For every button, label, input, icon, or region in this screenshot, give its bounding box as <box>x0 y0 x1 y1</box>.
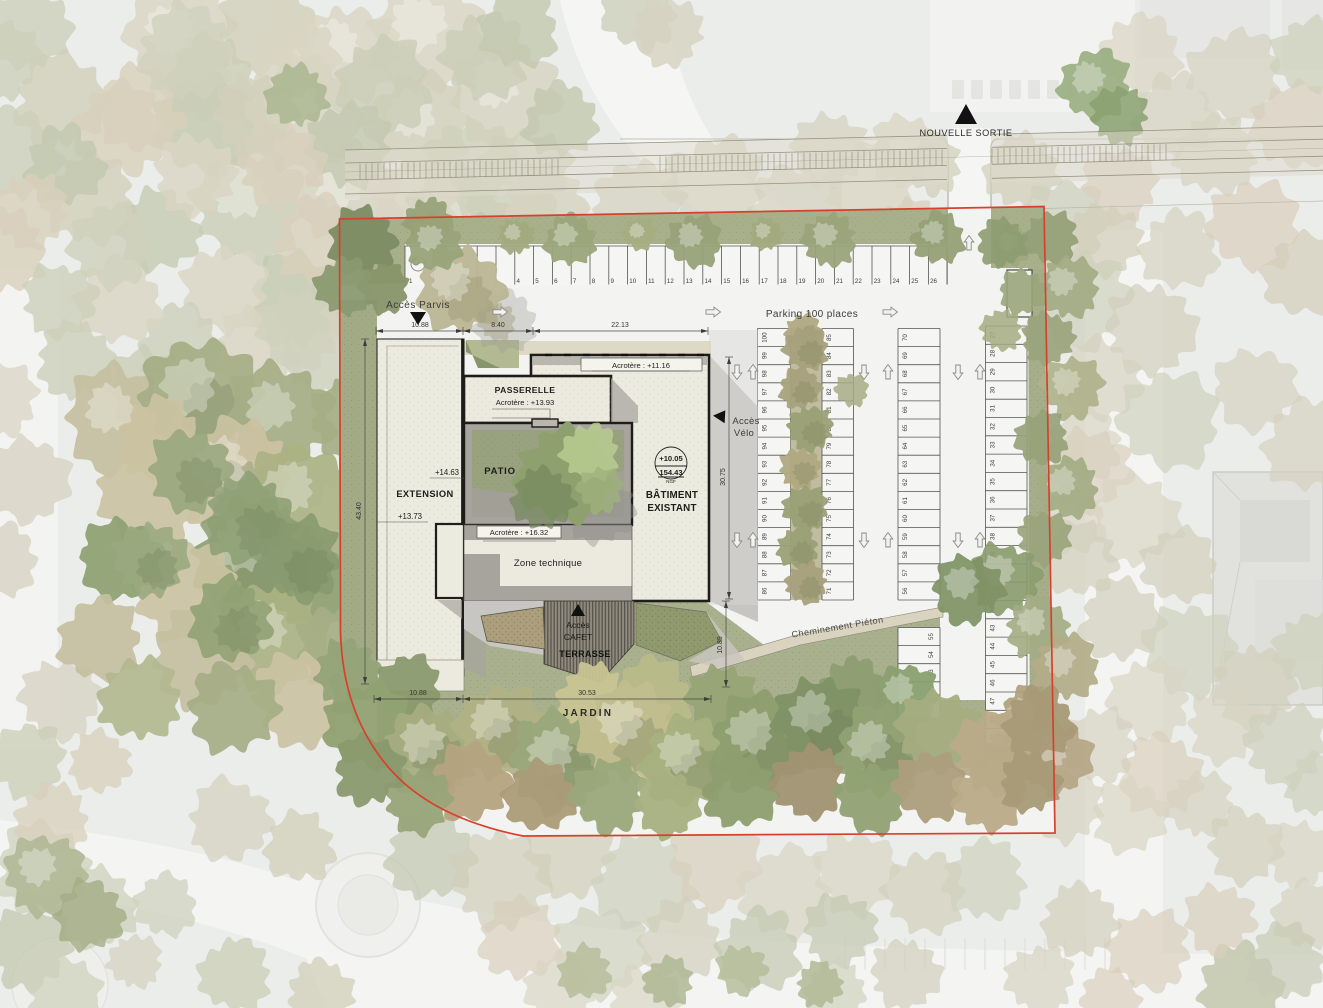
svg-text:62: 62 <box>902 478 909 485</box>
svg-text:99: 99 <box>762 352 769 359</box>
svg-text:32: 32 <box>990 423 997 430</box>
svg-text:63: 63 <box>902 460 909 467</box>
svg-text:23: 23 <box>874 278 881 285</box>
svg-text:5: 5 <box>535 278 539 285</box>
svg-text:68: 68 <box>902 370 909 377</box>
svg-text:72: 72 <box>826 569 833 576</box>
svg-text:45: 45 <box>990 661 997 668</box>
svg-text:35: 35 <box>990 478 997 485</box>
svg-text:EXTENSION: EXTENSION <box>396 489 453 499</box>
svg-text:36: 36 <box>990 496 997 503</box>
svg-text:89: 89 <box>762 533 769 540</box>
svg-text:88: 88 <box>762 551 769 558</box>
svg-text:64: 64 <box>902 442 909 449</box>
svg-text:73: 73 <box>826 551 833 558</box>
svg-text:54: 54 <box>928 651 935 658</box>
svg-text:NGF: NGF <box>666 479 676 484</box>
svg-text:10.89: 10.89 <box>717 636 724 654</box>
svg-text:34: 34 <box>990 459 997 466</box>
svg-text:91: 91 <box>762 497 769 504</box>
svg-text:37: 37 <box>990 514 997 521</box>
svg-text:77: 77 <box>826 478 833 485</box>
svg-text:87: 87 <box>762 569 769 576</box>
svg-text:86: 86 <box>762 587 769 594</box>
svg-text:30.75: 30.75 <box>720 468 727 486</box>
svg-text:98: 98 <box>762 370 769 377</box>
svg-text:29: 29 <box>990 368 997 375</box>
svg-text:8.40: 8.40 <box>491 322 505 329</box>
svg-text:83: 83 <box>826 370 833 377</box>
svg-text:13: 13 <box>686 278 693 285</box>
svg-text:85: 85 <box>826 334 833 341</box>
svg-text:70: 70 <box>902 334 909 341</box>
svg-text:7: 7 <box>573 278 577 285</box>
svg-text:TERRASSE: TERRASSE <box>559 649 610 659</box>
svg-text:154.43: 154.43 <box>659 468 682 477</box>
svg-text:31: 31 <box>990 404 997 411</box>
svg-text:Accès Parvis: Accès Parvis <box>386 300 450 311</box>
svg-text:25: 25 <box>911 278 918 285</box>
svg-text:19: 19 <box>799 278 806 285</box>
svg-text:82: 82 <box>826 388 833 395</box>
svg-text:58: 58 <box>902 551 909 558</box>
svg-text:Accès: Accès <box>732 416 759 427</box>
svg-text:30: 30 <box>990 386 997 393</box>
svg-text:9: 9 <box>611 278 615 285</box>
svg-text:Accès: Accès <box>566 620 589 630</box>
svg-text:61: 61 <box>902 497 909 504</box>
svg-text:+14.63: +14.63 <box>435 468 459 477</box>
svg-text:Acrotère : +16.32: Acrotère : +16.32 <box>490 528 548 537</box>
svg-text:Acrotère : +11.16: Acrotère : +11.16 <box>612 361 670 370</box>
svg-text:46: 46 <box>990 679 997 686</box>
svg-text:Zone technique: Zone technique <box>514 558 582 569</box>
svg-text:21: 21 <box>836 278 843 285</box>
svg-text:57: 57 <box>902 569 909 576</box>
svg-text:1: 1 <box>409 278 413 285</box>
svg-text:78: 78 <box>826 460 833 467</box>
svg-text:Acrotère : +13.93: Acrotère : +13.93 <box>496 398 554 407</box>
svg-text:55: 55 <box>928 633 935 640</box>
svg-text:+10.05: +10.05 <box>659 454 683 463</box>
svg-text:Vélo: Vélo <box>734 428 754 439</box>
svg-text:11: 11 <box>648 278 655 285</box>
svg-text:14: 14 <box>705 278 712 285</box>
svg-text:10.88: 10.88 <box>411 322 429 329</box>
svg-text:71: 71 <box>826 587 833 594</box>
svg-text:12: 12 <box>667 278 674 285</box>
svg-text:93: 93 <box>762 460 769 467</box>
svg-text:22.13: 22.13 <box>611 322 629 329</box>
svg-text:67: 67 <box>902 388 909 395</box>
svg-text:+13.73: +13.73 <box>398 512 422 521</box>
svg-text:69: 69 <box>902 352 909 359</box>
svg-text:94: 94 <box>762 442 769 449</box>
svg-text:4: 4 <box>517 278 521 285</box>
svg-text:60: 60 <box>902 515 909 522</box>
svg-text:10.88: 10.88 <box>409 690 427 697</box>
svg-text:97: 97 <box>762 388 769 395</box>
svg-text:92: 92 <box>762 478 769 485</box>
svg-text:6: 6 <box>554 278 558 285</box>
svg-text:65: 65 <box>902 424 909 431</box>
svg-text:95: 95 <box>762 424 769 431</box>
svg-text:59: 59 <box>902 533 909 540</box>
svg-text:17: 17 <box>761 278 768 285</box>
svg-text:66: 66 <box>902 406 909 413</box>
svg-text:56: 56 <box>902 587 909 594</box>
svg-text:33: 33 <box>990 441 997 448</box>
svg-text:EXISTANT: EXISTANT <box>647 503 696 514</box>
svg-text:BÂTIMENT: BÂTIMENT <box>646 489 698 501</box>
svg-text:24: 24 <box>893 278 900 285</box>
svg-text:38: 38 <box>990 533 997 540</box>
svg-text:26: 26 <box>930 278 937 285</box>
svg-text:JARDIN: JARDIN <box>563 708 613 719</box>
svg-text:PASSERELLE: PASSERELLE <box>495 385 556 395</box>
svg-text:PATIO: PATIO <box>484 466 516 477</box>
svg-text:Parking 100 places: Parking 100 places <box>766 309 858 320</box>
svg-text:28: 28 <box>990 349 997 356</box>
svg-text:79: 79 <box>826 442 833 449</box>
svg-text:8: 8 <box>592 278 596 285</box>
svg-text:47: 47 <box>990 697 997 704</box>
svg-text:90: 90 <box>762 515 769 522</box>
svg-text:96: 96 <box>762 406 769 413</box>
svg-text:15: 15 <box>723 278 730 285</box>
svg-text:74: 74 <box>826 533 833 540</box>
svg-text:NOUVELLE SORTIE: NOUVELLE SORTIE <box>919 128 1012 138</box>
svg-text:16: 16 <box>742 278 749 285</box>
svg-text:30.53: 30.53 <box>578 690 596 697</box>
svg-text:CAFET: CAFET <box>564 632 593 642</box>
svg-text:20: 20 <box>817 278 824 285</box>
svg-text:100: 100 <box>762 332 769 343</box>
svg-text:10: 10 <box>629 278 636 285</box>
svg-text:44: 44 <box>990 642 997 649</box>
svg-text:43.40: 43.40 <box>356 502 363 520</box>
svg-text:18: 18 <box>780 278 787 285</box>
svg-text:43: 43 <box>990 624 997 631</box>
svg-text:22: 22 <box>855 278 862 285</box>
